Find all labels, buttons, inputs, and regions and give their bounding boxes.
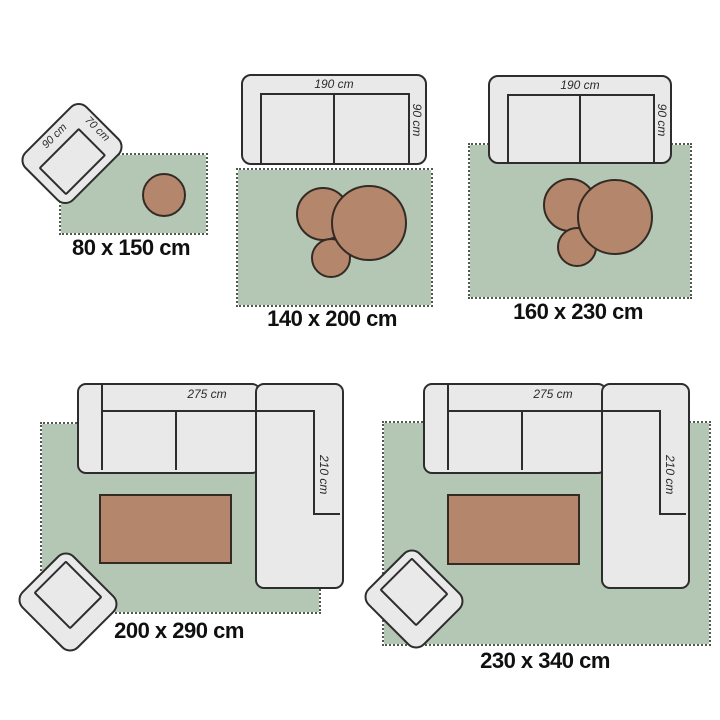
sofa-width-label: 190 cm — [490, 78, 670, 92]
chaise-backrest-line — [659, 410, 661, 515]
sofa-seat — [260, 93, 410, 163]
rug-size-label: 200 x 290 cm — [79, 618, 279, 644]
sofa-width-label: 275 cm — [447, 387, 659, 401]
coffee-table — [447, 494, 580, 565]
rug-size-guide: 90 cm 70 cm 80 x 150 cm 190 cm 90 cm 140… — [0, 0, 720, 720]
chaise-backrest-line — [313, 410, 315, 515]
rug-size-label: 140 x 200 cm — [232, 306, 432, 332]
chaise-end-line — [659, 513, 686, 515]
sofa-depth-label: 210 cm — [317, 455, 331, 494]
rug-size-label: 80 x 150 cm — [31, 235, 231, 261]
coffee-table — [99, 494, 232, 564]
rug-size-label: 230 x 340 cm — [445, 648, 645, 674]
two-seater-sofa: 190 cm 90 cm — [241, 74, 427, 165]
sofa-seat — [507, 94, 655, 162]
sofa-seat-divider — [333, 93, 335, 163]
rug-size-label: 160 x 230 cm — [478, 299, 678, 325]
sofa-backrest-line — [447, 410, 659, 412]
side-table — [142, 173, 186, 217]
sofa-backrest-line — [101, 410, 313, 412]
sofa-depth-label: 210 cm — [663, 455, 677, 494]
sofa-seat-divider — [521, 410, 523, 470]
sofa-width-label: 190 cm — [243, 77, 425, 91]
sofa-depth-label: 90 cm — [410, 103, 424, 136]
nesting-table-large — [577, 179, 653, 255]
two-seater-sofa: 190 cm 90 cm — [488, 75, 672, 164]
nesting-table-large — [331, 185, 407, 261]
sofa-width-label: 275 cm — [101, 387, 313, 401]
chaise-end-line — [313, 513, 340, 515]
sofa-seat-divider — [579, 94, 581, 162]
sofa-depth-label: 90 cm — [655, 103, 669, 136]
sofa-seat-divider — [175, 410, 177, 470]
